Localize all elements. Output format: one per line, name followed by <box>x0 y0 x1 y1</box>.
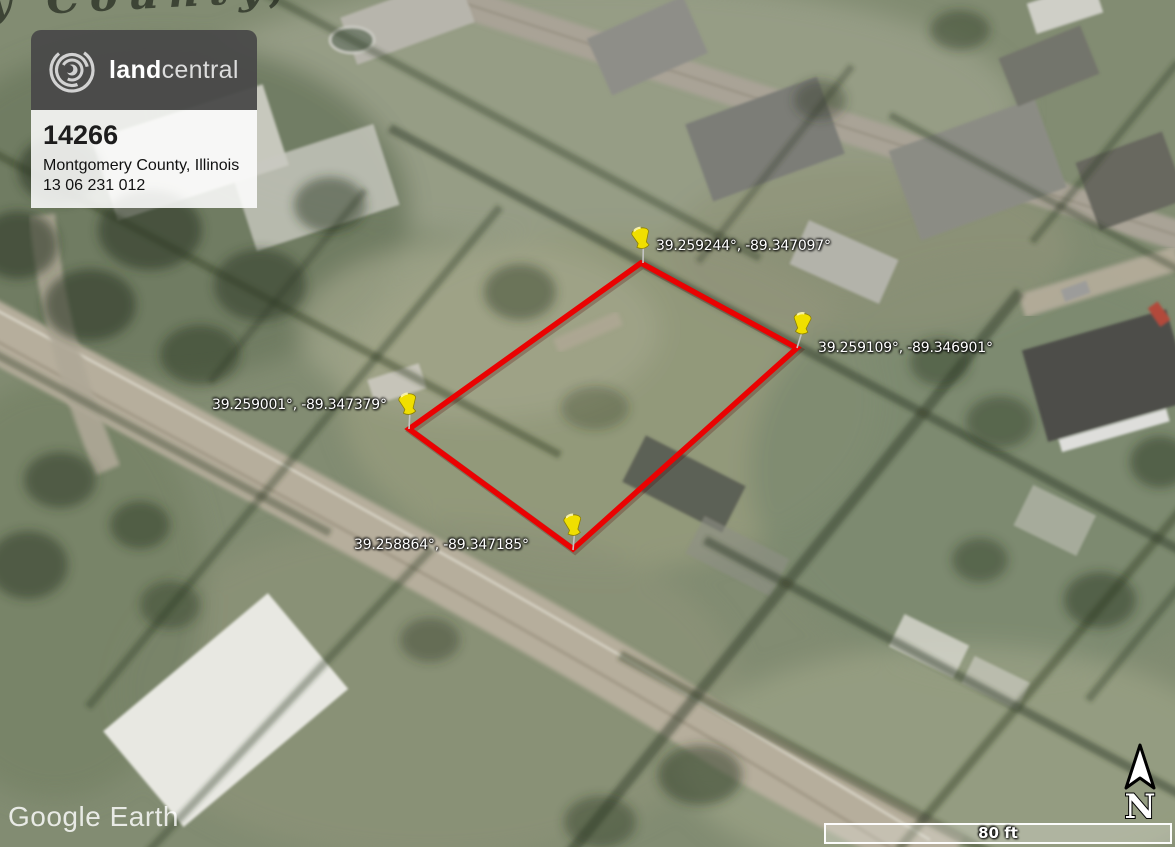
property-apn: 13 06 231 012 <box>43 176 243 196</box>
listing-card-body: 14266 Montgomery County, Illinois 13 06 … <box>31 110 257 208</box>
landcentral-logo-icon <box>47 45 97 95</box>
north-arrow-label: N <box>1124 787 1155 824</box>
property-id: 14266 <box>43 121 243 149</box>
pin-coordinate-label-north: 39.259244°, -89.347097° <box>656 238 831 254</box>
scale-bar: 80 ft <box>824 823 1172 844</box>
pin-coordinate-label-south: 39.258864°, -89.347185° <box>354 537 529 553</box>
listing-card: landcentral 14266 Montgomery County, Ill… <box>31 30 257 208</box>
north-arrow-pointer <box>1126 745 1154 788</box>
pin-coordinate-label-east: 39.259109°, -89.346901° <box>818 340 993 356</box>
scale-bar-label: 80 ft <box>978 826 1018 841</box>
pin-coordinate-label-west: 39.259001°, -89.347379° <box>212 397 387 413</box>
north-arrow: N <box>1112 742 1168 824</box>
wordmark-central: central <box>162 56 239 84</box>
google-earth-watermark: Google Earth <box>8 801 179 833</box>
property-county: Montgomery County, Illinois <box>43 156 243 176</box>
listing-card-header: landcentral <box>31 30 257 110</box>
landcentral-wordmark: landcentral <box>109 56 239 85</box>
wordmark-land: land <box>109 56 162 84</box>
google-earth-viewport[interactable]: y County, I <box>0 0 1175 847</box>
